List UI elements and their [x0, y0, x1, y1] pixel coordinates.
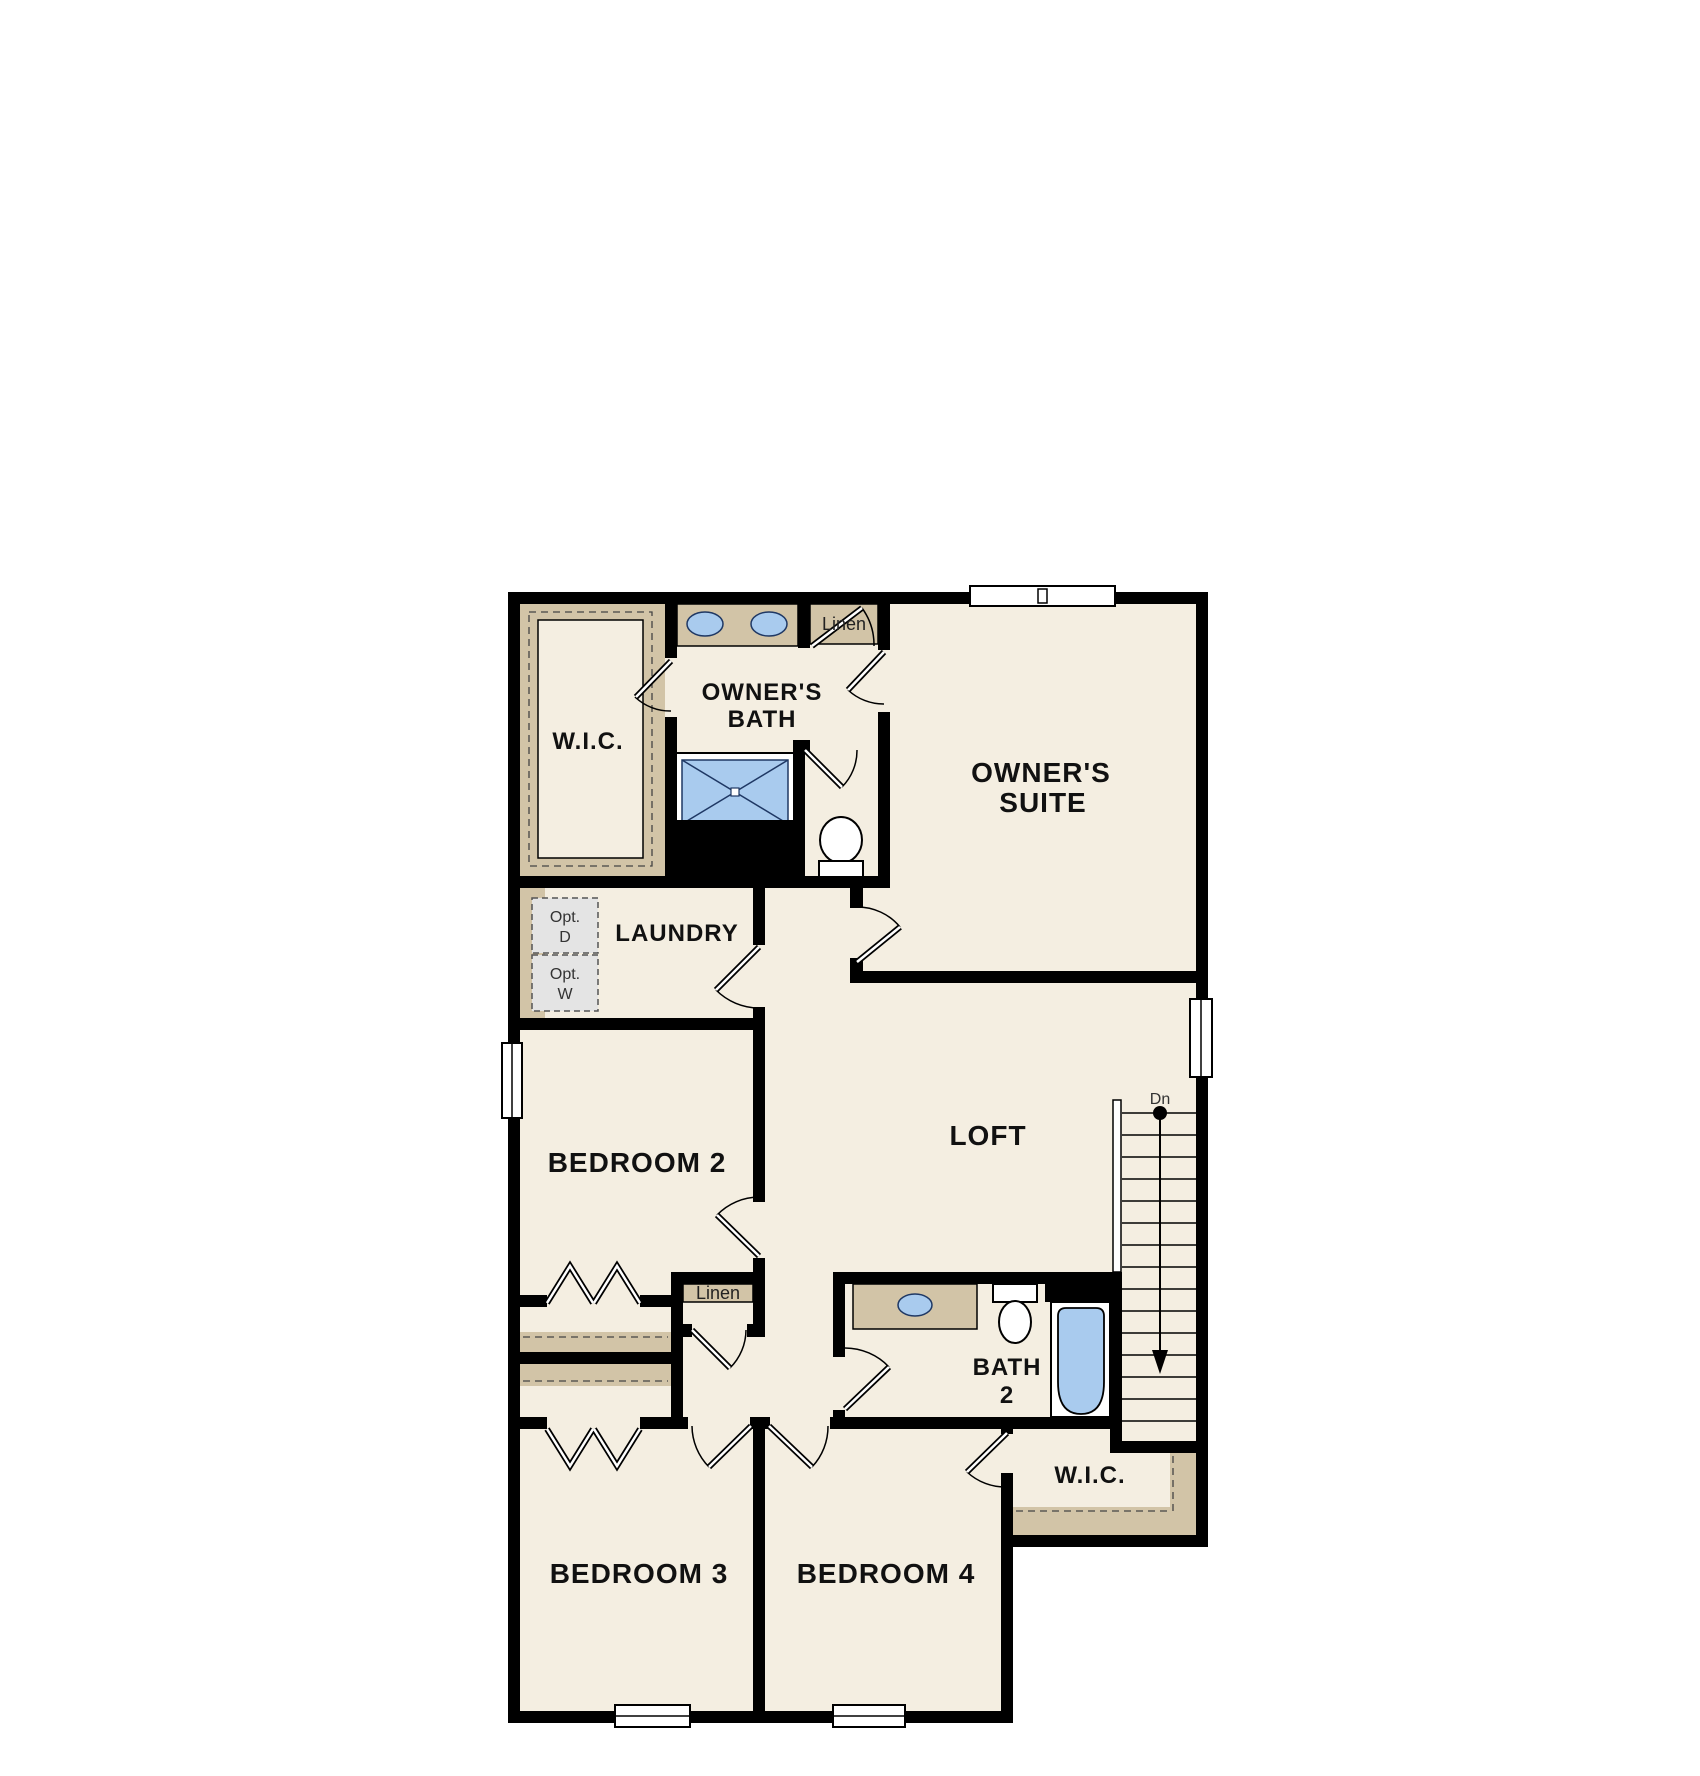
label-bedroom4: BEDROOM 4 — [797, 1558, 976, 1589]
label-owners-bath-1: OWNER'S — [702, 679, 823, 706]
floor-plan-page: W.I.C. OWNER'S BATH Linen OWNER'S SUITE … — [0, 0, 1700, 1776]
label-owners-bath-2: BATH — [728, 706, 797, 733]
label-owners-wic: W.I.C. — [552, 728, 623, 755]
bath2-sink — [898, 1294, 932, 1316]
label-laundry: LAUNDRY — [615, 920, 738, 947]
label-linen-upper: Linen — [822, 614, 866, 634]
label-stairs-dn: Dn — [1150, 1091, 1170, 1108]
label-loft: LOFT — [949, 1120, 1026, 1151]
owners-suite-side-window — [1190, 999, 1212, 1077]
label-owners-suite-1: OWNER'S — [971, 757, 1111, 788]
owners-bath-shower — [675, 753, 795, 831]
bath2-tub — [1051, 1302, 1110, 1417]
bedroom3-window — [615, 1705, 690, 1727]
floor-plan-drawing: W.I.C. OWNER'S BATH Linen OWNER'S SUITE … — [0, 0, 1700, 1776]
label-linen-lower: Linen — [696, 1283, 740, 1303]
bedroom2-closet-shelf — [520, 1332, 671, 1352]
label-opt-washer-1: Opt. — [550, 966, 580, 983]
label-opt-washer-2: W — [557, 986, 573, 1003]
bedroom4-window — [833, 1705, 905, 1727]
bedroom3-closet-shelf — [520, 1364, 671, 1386]
label-hall-wic: W.I.C. — [1054, 1462, 1125, 1489]
owners-bath-toilet — [819, 817, 863, 877]
label-bedroom2: BEDROOM 2 — [548, 1147, 727, 1178]
label-opt-dryer-1: Opt. — [550, 909, 580, 926]
label-bath2-2: 2 — [1000, 1382, 1014, 1409]
stair-railing — [1113, 1100, 1121, 1272]
label-owners-suite-2: SUITE — [999, 787, 1086, 818]
owners-suite-top-window — [970, 586, 1115, 606]
label-opt-dryer-2: D — [559, 929, 571, 946]
bedroom2-window — [502, 1043, 522, 1118]
label-bedroom3: BEDROOM 3 — [550, 1558, 729, 1589]
label-bath2-1: BATH — [973, 1354, 1042, 1381]
